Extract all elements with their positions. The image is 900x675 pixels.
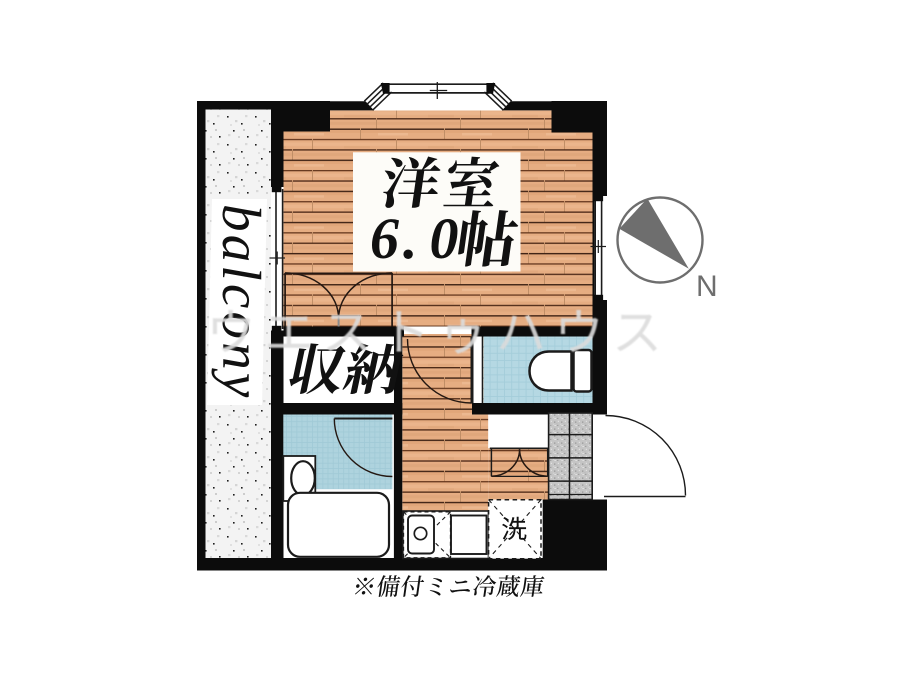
svg-text:N: N bbox=[696, 270, 718, 303]
svg-text:balcony: balcony bbox=[211, 204, 272, 401]
svg-text:6: 6 bbox=[370, 206, 399, 271]
svg-text:0: 0 bbox=[430, 206, 459, 271]
svg-text:.: . bbox=[403, 206, 418, 271]
